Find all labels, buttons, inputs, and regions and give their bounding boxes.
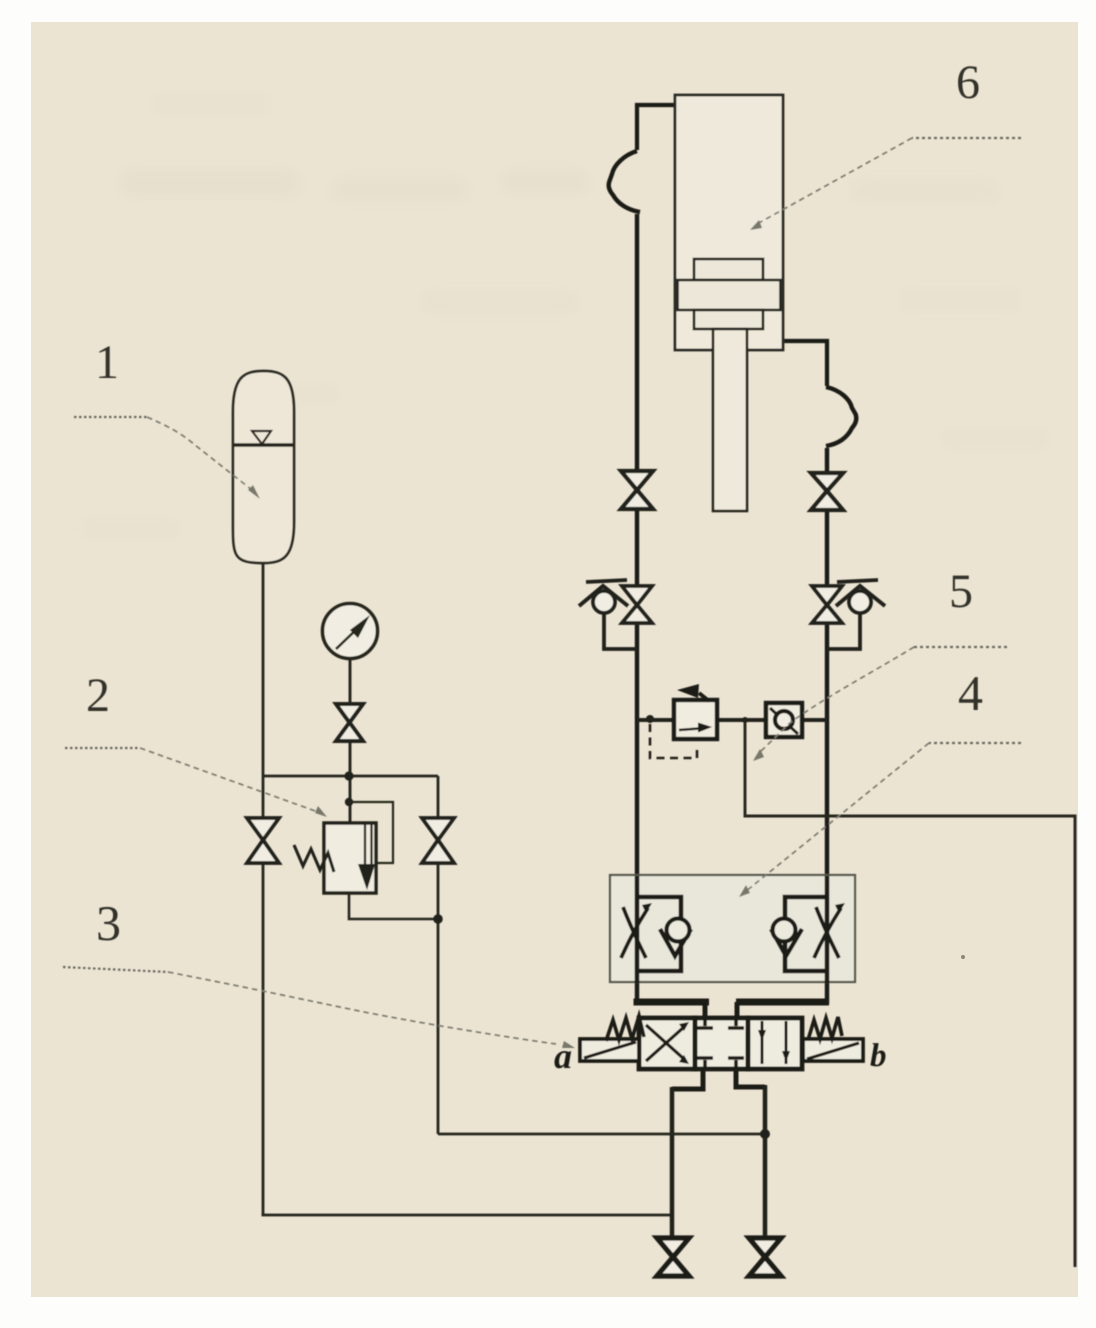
svg-text:b: b bbox=[870, 1038, 887, 1074]
svg-text:3: 3 bbox=[96, 895, 121, 951]
svg-text:2: 2 bbox=[86, 669, 110, 722]
svg-text:1: 1 bbox=[95, 336, 119, 389]
svg-text:4: 4 bbox=[958, 665, 983, 721]
svg-text:6: 6 bbox=[956, 56, 980, 109]
svg-text:a: a bbox=[554, 1036, 572, 1076]
svg-text:5: 5 bbox=[949, 565, 973, 618]
